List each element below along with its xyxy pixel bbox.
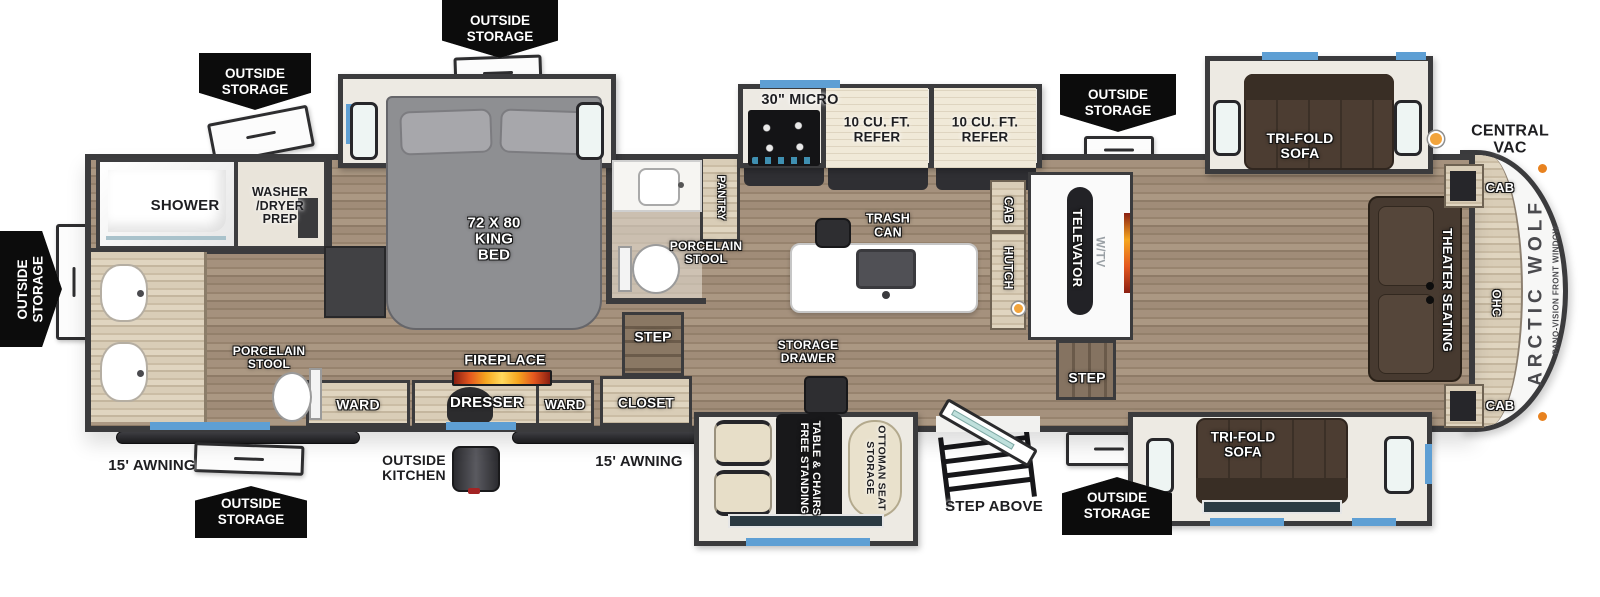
living-step-label: STEP xyxy=(1068,370,1105,385)
porcelain-stool-rear-label: PORCELAIN STOOL xyxy=(233,345,305,371)
badge-label: OUTSIDE STORAGE xyxy=(15,256,46,323)
kitchen-counter-2 xyxy=(828,166,928,190)
cooktop-knobs xyxy=(752,157,814,164)
fireplace-label: FIREPLACE xyxy=(464,352,545,367)
cab-front-top-label: CAB xyxy=(1486,181,1515,195)
bath-bed-wall xyxy=(326,158,332,252)
awning-main-label: 15' AWNING xyxy=(595,454,683,470)
central-vac-legend-dot xyxy=(1428,131,1444,147)
cooktop xyxy=(748,110,820,166)
sofa-bottom-accent-1 xyxy=(1210,518,1284,526)
model-name: ARCTIC WOLF xyxy=(1527,198,1548,386)
hutch-label: HUTCH xyxy=(1002,247,1015,290)
sofa-top-window-accent-1 xyxy=(1262,52,1318,60)
rv-floorplan-diagram: OUTSIDE STORAGE OUTSIDE STORAGE OUTSIDE … xyxy=(0,0,1600,597)
shower-label: SHOWER xyxy=(151,198,220,214)
vanity-faucet-1 xyxy=(137,290,144,297)
televator-fireplace-accent xyxy=(1124,213,1130,293)
tri-fold-sofa-top-label: TRI-FOLD SOFA xyxy=(1267,131,1334,161)
washer-dryer-label: WASHER /DRYER PREP xyxy=(252,186,308,227)
sofa-bottom-accent-right xyxy=(1425,444,1432,484)
kitchen-counter-1 xyxy=(744,166,824,186)
cab-kitchen-label: CAB xyxy=(1002,197,1015,224)
midbath-counter xyxy=(612,160,702,212)
dinette-entry-mat xyxy=(728,514,884,528)
bedroom-wardrobe xyxy=(324,246,386,318)
awning-rail-rear xyxy=(116,431,360,444)
bedroom-step-label: STEP xyxy=(634,329,671,344)
window-accent-mid-bottom xyxy=(446,422,516,430)
midbath-toilet-tank xyxy=(618,246,632,292)
king-bed-label: 72 X 80 KING BED xyxy=(467,216,520,265)
kitchen-slide-window xyxy=(760,80,840,88)
pantry-label: PANTRY xyxy=(714,175,726,220)
porcelain-stool-mid-label: PORCELAIN STOOL xyxy=(670,240,742,266)
awning-rail-main xyxy=(512,431,704,444)
ward-right-label: WARD xyxy=(545,398,586,412)
badge-label: OUTSIDE STORAGE xyxy=(218,496,285,527)
midbath-faucet xyxy=(678,182,684,188)
cab-front-bottom-label: CAB xyxy=(1486,399,1515,413)
front-clearance-light-top xyxy=(1538,164,1547,173)
outside-storage-badge-bottom-rear: OUTSIDE STORAGE xyxy=(195,486,307,538)
ohc-label: OHC xyxy=(1490,289,1503,316)
central-vac-legend-label: CENTRAL VAC xyxy=(1465,123,1555,158)
storage-door-bottom-rear xyxy=(194,442,305,476)
sofa-top-window-accent-2 xyxy=(1396,52,1426,60)
sofa-bottom-window-right xyxy=(1384,436,1414,494)
island-sink xyxy=(856,249,916,289)
closet-label: CLOSET xyxy=(618,397,674,412)
theater-seating-label: THEATER SEATING xyxy=(1440,228,1454,352)
vanity-counter xyxy=(91,252,207,422)
king-bed xyxy=(386,96,602,330)
dresser-label: DRESSER xyxy=(450,395,524,411)
cab-box-bottom xyxy=(1444,384,1484,428)
storage-drawer-unit xyxy=(804,376,848,414)
pillow-left xyxy=(399,108,492,155)
cupholder-1 xyxy=(1426,282,1434,290)
outside-kitchen-label: OUTSIDE KITCHEN xyxy=(382,453,446,483)
island-faucet xyxy=(882,291,890,299)
dinette-accent xyxy=(746,538,870,546)
televator-label: TELEVATOR xyxy=(1070,209,1084,287)
televator-tv-label: W/TV xyxy=(1094,237,1107,268)
storage-drawer-label: STORAGE DRAWER xyxy=(778,339,839,365)
badge-label: OUTSIDE STORAGE xyxy=(1084,490,1151,521)
badge-label: OUTSIDE STORAGE xyxy=(222,66,289,97)
storage-ottoman-label: STORAGE OTTOMAN SEAT xyxy=(864,425,887,510)
sofa-bottom-entry-mat xyxy=(1202,500,1342,514)
micro-label: 30" MICRO xyxy=(761,93,838,109)
sofa-bottom-window-left xyxy=(1146,438,1174,494)
sofa-top-window-left xyxy=(1213,100,1241,156)
sofa-bottom-accent-2 xyxy=(1352,518,1396,526)
cupholder-2 xyxy=(1426,296,1434,304)
refer-2-label: 10 CU. FT. REFER xyxy=(952,115,1019,144)
badge-label: OUTSIDE STORAGE xyxy=(467,13,534,44)
window-accent-rear-bottom xyxy=(150,422,270,430)
sofa-top-window-right xyxy=(1394,100,1422,156)
badge-label: OUTSIDE STORAGE xyxy=(1085,87,1152,118)
awning-rear-label: 15' AWNING xyxy=(108,458,196,474)
pano-vision-note: PANO-VISION FRONT WINDOW xyxy=(1553,226,1562,355)
outside-storage-badge-rear: OUTSIDE STORAGE xyxy=(0,231,62,347)
dinette-chair-1 xyxy=(714,420,772,466)
vanity-faucet-2 xyxy=(137,370,144,377)
outside-storage-badge-top-bedroom: OUTSIDE STORAGE xyxy=(442,0,558,58)
outside-storage-badge-top-rear: OUTSIDE STORAGE xyxy=(199,53,311,110)
ward-left-label: WARD xyxy=(336,397,380,412)
kitchen-divider-2 xyxy=(929,88,934,168)
outside-kitchen-valve xyxy=(468,488,480,494)
tri-fold-sofa-bottom-label: TRI-FOLD SOFA xyxy=(1211,430,1276,459)
midbath-sink xyxy=(638,168,680,206)
trash-can-label: TRASH CAN xyxy=(866,213,910,240)
free-standing-table-label: FREE STANDING TABLE & CHAIRS xyxy=(797,421,821,516)
cab-box-top xyxy=(1444,164,1484,208)
fireplace-unit xyxy=(452,370,552,386)
outside-storage-badge-top-front: OUTSIDE STORAGE xyxy=(1060,74,1176,132)
dinette-chair-2 xyxy=(714,470,772,516)
kitchen-island xyxy=(790,243,978,313)
trash-can-unit xyxy=(815,218,851,248)
midbath-wall-bottom xyxy=(606,298,706,304)
refer-1-label: 10 CU. FT. REFER xyxy=(844,115,911,144)
rear-toilet-bowl xyxy=(272,372,312,422)
outside-kitchen-unit xyxy=(452,446,500,492)
bedroom-window-left xyxy=(350,102,378,160)
tri-fold-sofa-top-back xyxy=(1244,74,1394,100)
front-clearance-light-bottom xyxy=(1538,412,1547,421)
bedroom-window-right xyxy=(576,102,604,160)
step-above-label: STEP ABOVE xyxy=(945,499,1043,515)
central-vac-marker xyxy=(1012,302,1025,315)
